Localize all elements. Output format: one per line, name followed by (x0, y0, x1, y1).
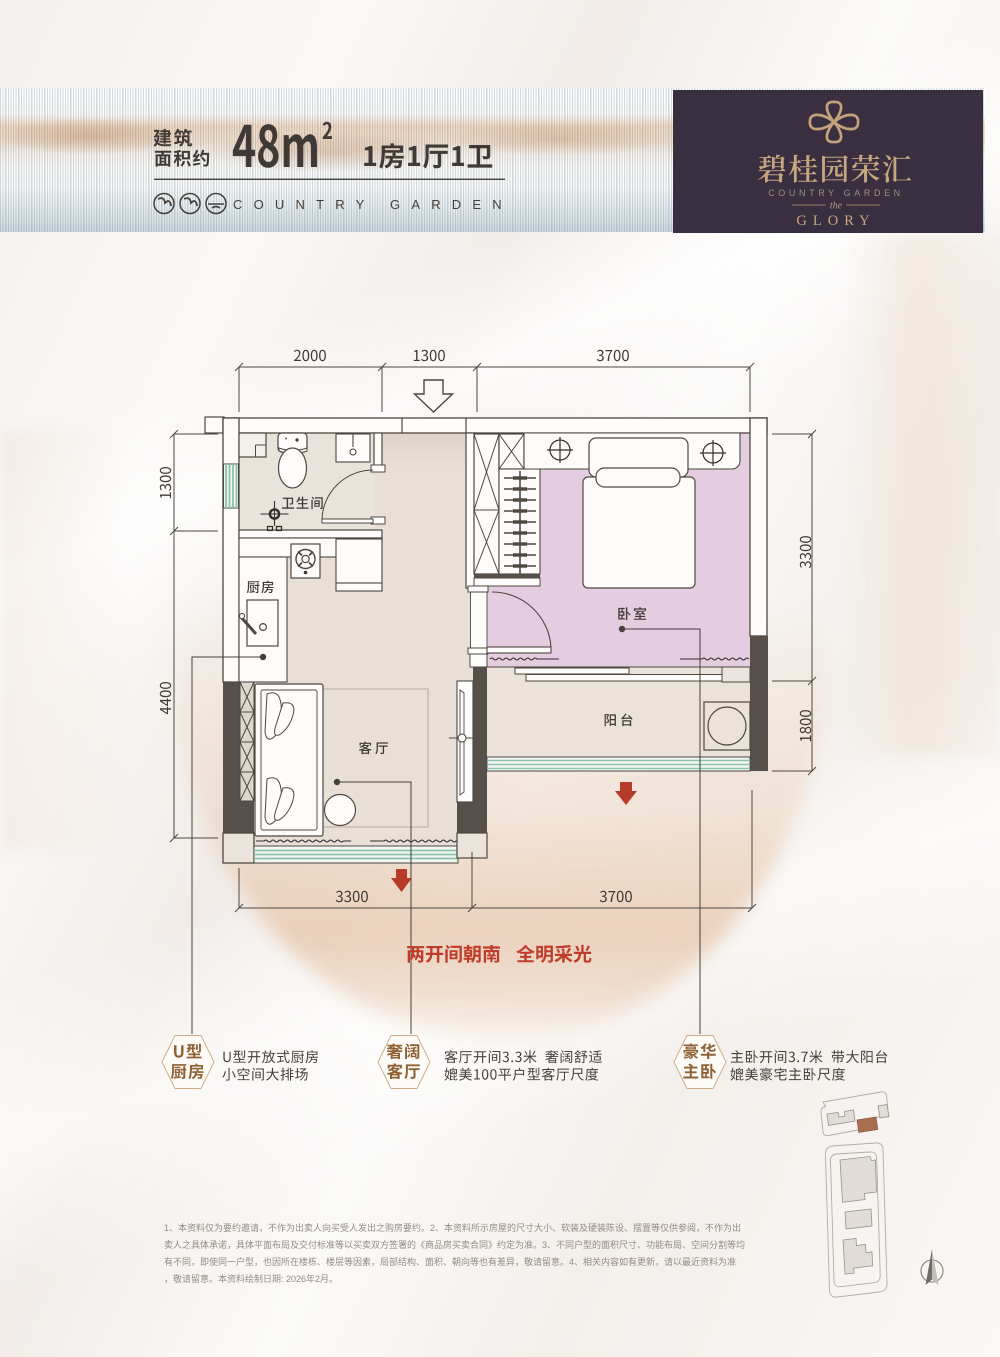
svg-text:the: the (830, 201, 843, 212)
svg-text:COUNTRY GARDEN: COUNTRY GARDEN (233, 197, 513, 212)
svg-text:GLORY: GLORY (796, 213, 875, 229)
svg-text:COUNTRY GARDEN: COUNTRY GARDEN (768, 188, 904, 198)
